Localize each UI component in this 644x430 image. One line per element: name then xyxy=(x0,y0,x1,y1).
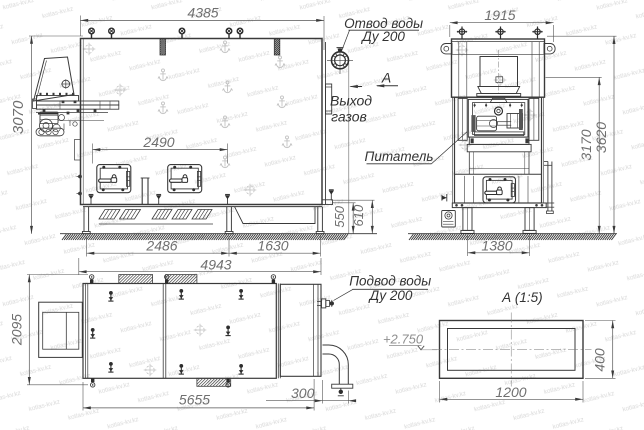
svg-text:3070: 3070 xyxy=(10,100,27,134)
svg-text:610: 610 xyxy=(351,204,366,226)
svg-text:1915: 1915 xyxy=(484,7,515,23)
svg-text:Подвод воды: Подвод воды xyxy=(349,274,431,289)
svg-text:300: 300 xyxy=(291,385,315,401)
svg-text:550: 550 xyxy=(332,205,347,227)
svg-text:5655: 5655 xyxy=(179,391,210,407)
svg-text:2486: 2486 xyxy=(145,238,177,254)
svg-text:Ду 200: Ду 200 xyxy=(368,288,413,303)
svg-text:400: 400 xyxy=(591,348,607,372)
svg-text:4943: 4943 xyxy=(200,257,231,273)
svg-text:+2.750: +2.750 xyxy=(383,331,424,346)
svg-text:А: А xyxy=(381,70,391,86)
svg-text:1200: 1200 xyxy=(495,384,526,400)
svg-text:Ду 200: Ду 200 xyxy=(360,29,405,44)
svg-text:3620: 3620 xyxy=(593,122,609,153)
svg-text:3170: 3170 xyxy=(578,129,594,160)
svg-text:Питатель: Питатель xyxy=(365,149,434,164)
svg-text:4385: 4385 xyxy=(187,5,218,21)
svg-text:А (1:5): А (1:5) xyxy=(501,290,543,305)
svg-text:2095: 2095 xyxy=(9,314,25,346)
svg-text:газов: газов xyxy=(331,109,367,125)
svg-text:2490: 2490 xyxy=(142,134,174,150)
svg-text:1380: 1380 xyxy=(481,237,512,253)
svg-text:1630: 1630 xyxy=(257,238,288,254)
svg-text:Выход: Выход xyxy=(330,93,372,109)
